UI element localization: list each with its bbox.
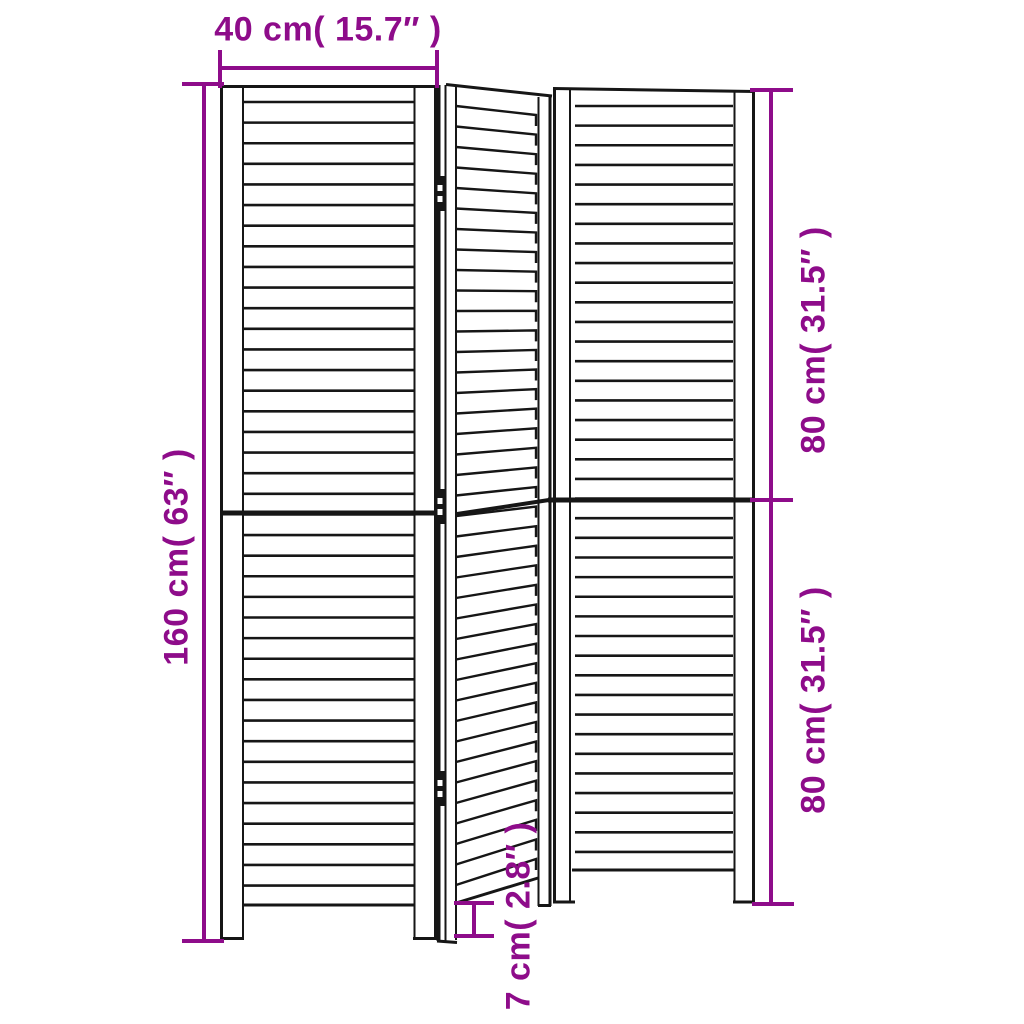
right-panel-louvers xyxy=(575,106,733,852)
hinge-middle xyxy=(435,489,446,524)
middle-panel-louvers xyxy=(456,106,536,885)
hinge-bottom xyxy=(435,771,446,806)
middle-panel xyxy=(437,85,552,943)
width-dimension-label: 40 cm( 15.7″ ) xyxy=(214,11,441,50)
hinge-top xyxy=(435,176,446,211)
total-height-dimension-label: 160 cm( 63″ ) xyxy=(158,448,197,665)
room-divider-dimension-diagram: 40 cm( 15.7″ ) 160 cm( 63″ ) 80 cm( 31.5… xyxy=(0,0,1024,1024)
right-panel xyxy=(548,89,755,904)
foot-height-dimension-label: 7 cm( 2.8″ ) xyxy=(500,822,539,1011)
left-panel xyxy=(220,85,437,940)
upper-section-dimension-label: 80 cm( 31.5″ ) xyxy=(795,226,834,453)
panels-drawing xyxy=(220,85,755,943)
lower-section-dimension-label: 80 cm( 31.5″ ) xyxy=(795,586,834,813)
left-panel-louvers xyxy=(244,102,414,886)
